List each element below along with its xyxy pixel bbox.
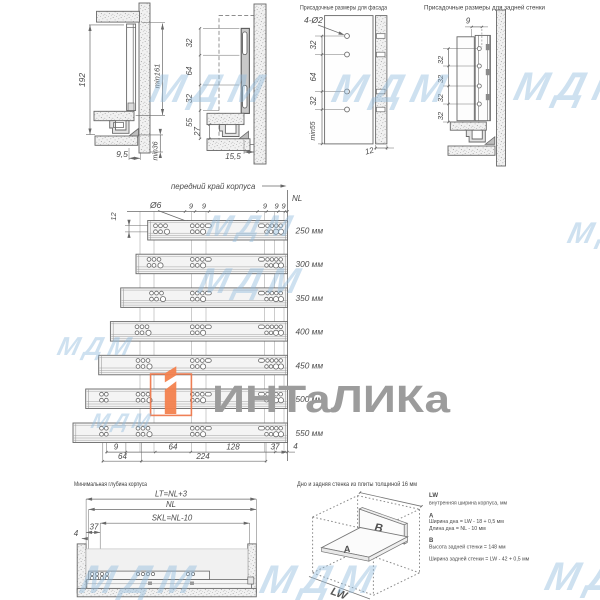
svg-text:Ø6: Ø6 <box>149 200 162 210</box>
svg-text:224: 224 <box>195 452 210 461</box>
svg-text:SKL=NL-10: SKL=NL-10 <box>152 514 193 523</box>
svg-text:МДМ: МДМ <box>55 331 139 361</box>
svg-text:550 мм: 550 мм <box>296 428 324 438</box>
svg-text:27: 27 <box>193 127 202 137</box>
svg-text:32: 32 <box>309 40 318 49</box>
svg-text:Высота задней стенки = 148 мм: Высота задней стенки = 148 мм <box>429 544 506 551</box>
svg-text:внутренняя ширина корпуса, мм: внутренняя ширина корпуса, мм <box>429 501 508 507</box>
svg-text:4: 4 <box>293 442 298 451</box>
svg-text:МДМ: МДМ <box>541 554 600 599</box>
svg-text:4: 4 <box>74 529 79 538</box>
svg-text:Дно и задняя стенка из плиты т: Дно и задняя стенка из плиты толщиной 16… <box>297 481 417 488</box>
svg-text:ИНТаЛИКа: ИНТаЛИКа <box>212 379 451 421</box>
svg-text:32: 32 <box>309 96 318 105</box>
svg-text:NL: NL <box>292 194 302 203</box>
svg-text:12: 12 <box>109 212 118 221</box>
svg-text:15,5: 15,5 <box>225 152 241 161</box>
svg-text:64: 64 <box>118 452 127 461</box>
svg-text:МДМ: МДМ <box>203 209 301 242</box>
svg-text:55: 55 <box>185 118 194 127</box>
svg-text:4-Ø2: 4-Ø2 <box>304 15 323 25</box>
svg-text:37: 37 <box>90 523 99 532</box>
svg-text:9: 9 <box>466 17 471 26</box>
svg-text:Ширина задней стенки = LW - 42: Ширина задней стенки = LW - 42 + 0,5 мм <box>429 556 530 563</box>
svg-text:32: 32 <box>436 55 445 64</box>
svg-text:9: 9 <box>114 443 119 452</box>
svg-text:Присадочные размеры для фасада: Присадочные размеры для фасада <box>300 6 388 12</box>
svg-text:400 мм: 400 мм <box>296 327 324 337</box>
svg-text:Присадочные размеры для задней: Присадочные размеры для задней стенки <box>424 5 545 12</box>
svg-text:передний край корпуса: передний край корпуса <box>171 182 256 191</box>
svg-text:37: 37 <box>271 443 280 452</box>
svg-text:min36: min36 <box>153 141 160 160</box>
svg-text:128: 128 <box>226 443 240 452</box>
svg-text:МДМ: МДМ <box>328 66 459 111</box>
svg-text:450 мм: 450 мм <box>296 360 324 370</box>
svg-text:МДМ: МДМ <box>256 557 387 600</box>
svg-text:B: B <box>429 538 434 544</box>
svg-text:9,5: 9,5 <box>116 149 128 159</box>
svg-text:Ширина дна = LW - 18 + 0,5 мм: Ширина дна = LW - 18 + 0,5 мм <box>429 519 504 525</box>
svg-text:min55: min55 <box>310 121 317 140</box>
svg-text:NL: NL <box>166 500 176 509</box>
svg-text:64: 64 <box>169 443 178 452</box>
svg-text:64: 64 <box>309 72 318 81</box>
svg-text:МДМ: МДМ <box>510 64 600 109</box>
svg-text:250 мм: 250 мм <box>295 226 324 236</box>
svg-text:192: 192 <box>77 73 87 87</box>
svg-text:МДМ: МДМ <box>146 66 277 111</box>
svg-text:LW: LW <box>429 493 438 499</box>
svg-text:32: 32 <box>436 111 445 120</box>
svg-text:МДМ: МДМ <box>76 557 207 600</box>
svg-text:МДМ: МДМ <box>89 409 157 433</box>
svg-text:Длина дна = NL - 10 мм: Длина дна = NL - 10 мм <box>429 526 486 532</box>
svg-text:МДМ: МДМ <box>194 261 311 301</box>
svg-text:32: 32 <box>185 38 194 47</box>
svg-text:Минимальная глубина корпуса: Минимальная глубина корпуса <box>74 482 148 488</box>
svg-text:LT=NL+3: LT=NL+3 <box>155 490 188 499</box>
